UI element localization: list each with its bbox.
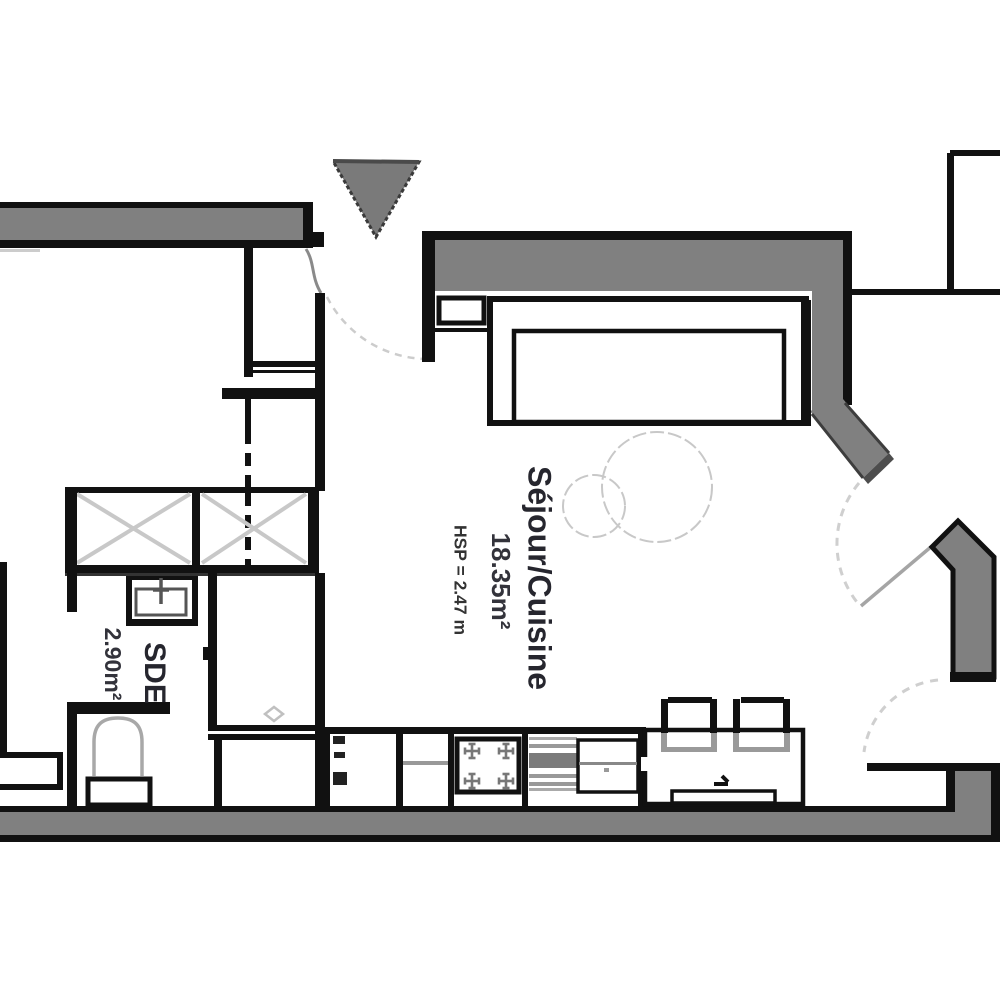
svg-text:SDE: SDE	[138, 642, 171, 704]
svg-text:18.35m²: 18.35m²	[486, 533, 516, 630]
svg-text:Séjour/Cuisine: Séjour/Cuisine	[522, 466, 558, 690]
svg-text:2.90m²: 2.90m²	[100, 628, 126, 701]
svg-text:HSP = 2.47 m: HSP = 2.47 m	[450, 525, 470, 635]
